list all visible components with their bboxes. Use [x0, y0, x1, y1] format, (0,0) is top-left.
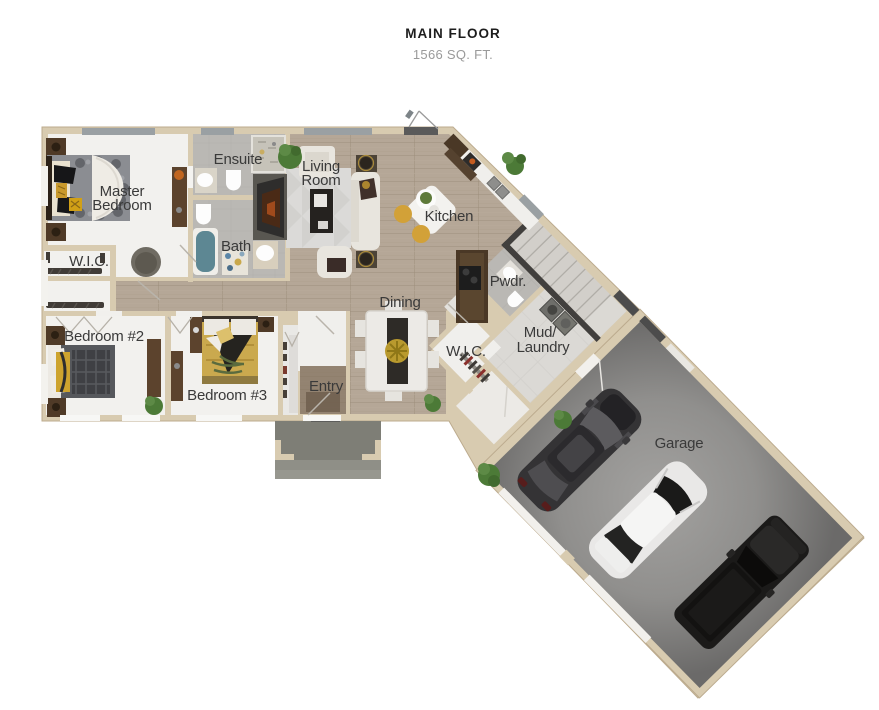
svg-text:Bedroom #2: Bedroom #2 — [64, 328, 144, 345]
svg-text:Entry: Entry — [309, 378, 344, 395]
svg-text:Laundry: Laundry — [517, 339, 571, 356]
svg-text:Garage: Garage — [655, 435, 704, 452]
svg-text:Bedroom: Bedroom — [92, 197, 151, 214]
svg-text:W.I.C.: W.I.C. — [69, 253, 109, 270]
svg-text:Ensuite: Ensuite — [214, 151, 263, 168]
svg-text:Dining: Dining — [379, 294, 420, 311]
svg-text:MAIN FLOOR: MAIN FLOOR — [405, 26, 501, 41]
svg-text:Bath: Bath — [221, 238, 251, 255]
svg-text:1566 SQ. FT.: 1566 SQ. FT. — [413, 47, 493, 62]
svg-text:Bedroom #3: Bedroom #3 — [187, 387, 267, 404]
svg-text:Room: Room — [301, 172, 340, 189]
svg-text:Pwdr.: Pwdr. — [490, 273, 527, 290]
svg-text:Kitchen: Kitchen — [425, 208, 474, 225]
svg-text:W.I.C.: W.I.C. — [446, 343, 486, 360]
